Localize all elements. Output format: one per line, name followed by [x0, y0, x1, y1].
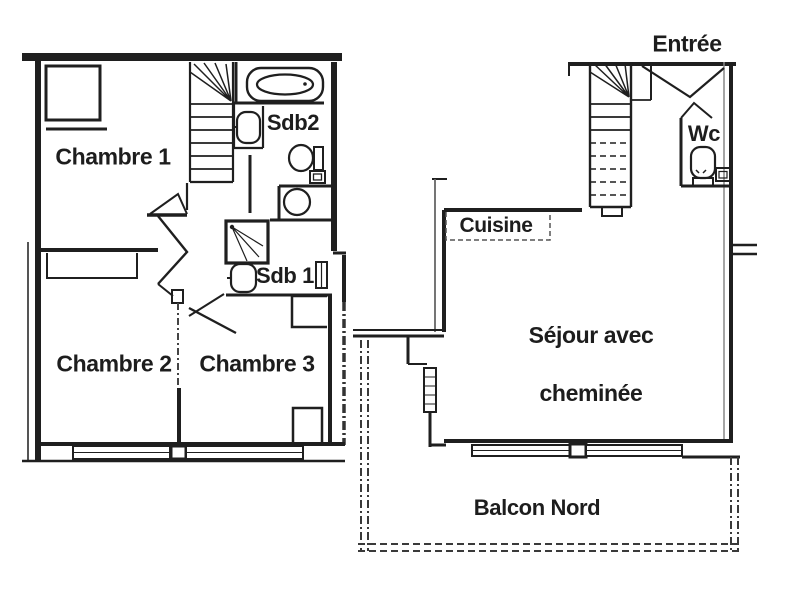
room-label-chambre2: Chambre 2 [56, 351, 171, 378]
room-label-chambre1: Chambre 1 [55, 144, 170, 171]
radiator-icon [316, 262, 327, 288]
room-label-sdb2: Sdb2 [267, 110, 319, 136]
room-label-wc: Wc [688, 121, 720, 147]
room-label-entree: Entrée [652, 31, 721, 58]
south-windows-icon [472, 444, 682, 457]
floor-plan-drawing [0, 0, 800, 603]
upper-windows-icon [73, 446, 303, 459]
entry-door-swing-icon [642, 66, 724, 118]
bedroom-partition [178, 303, 179, 443]
upper-stairs-icon [187, 62, 233, 210]
room-label-sejour: Séjour avec cheminée [529, 292, 654, 408]
room-label-chambre3: Chambre 3 [199, 351, 314, 378]
room-label-sdb1: Sdb 1 [256, 263, 314, 289]
sejour-line2: cheminée [540, 380, 643, 406]
room-label-cuisine: Cuisine [459, 214, 532, 238]
sdb1-sink-icon [227, 264, 256, 292]
sdb2-toilet-icon [289, 145, 325, 183]
bathtub-icon [247, 68, 323, 101]
floor-plan-page: Chambre 1 Chambre 2 Chambre 3 Sdb2 Sdb 1… [0, 0, 800, 603]
shower-icon [226, 221, 268, 263]
bedroom2-furniture [47, 253, 137, 278]
sdb2-sink-icon [233, 112, 260, 143]
room-label-balcon: Balcon Nord [474, 495, 600, 521]
ground-stairs-icon [590, 62, 631, 216]
washing-machine-icon [284, 189, 310, 215]
sejour-line1: Séjour avec [529, 322, 654, 348]
west-window-icon [424, 368, 436, 412]
